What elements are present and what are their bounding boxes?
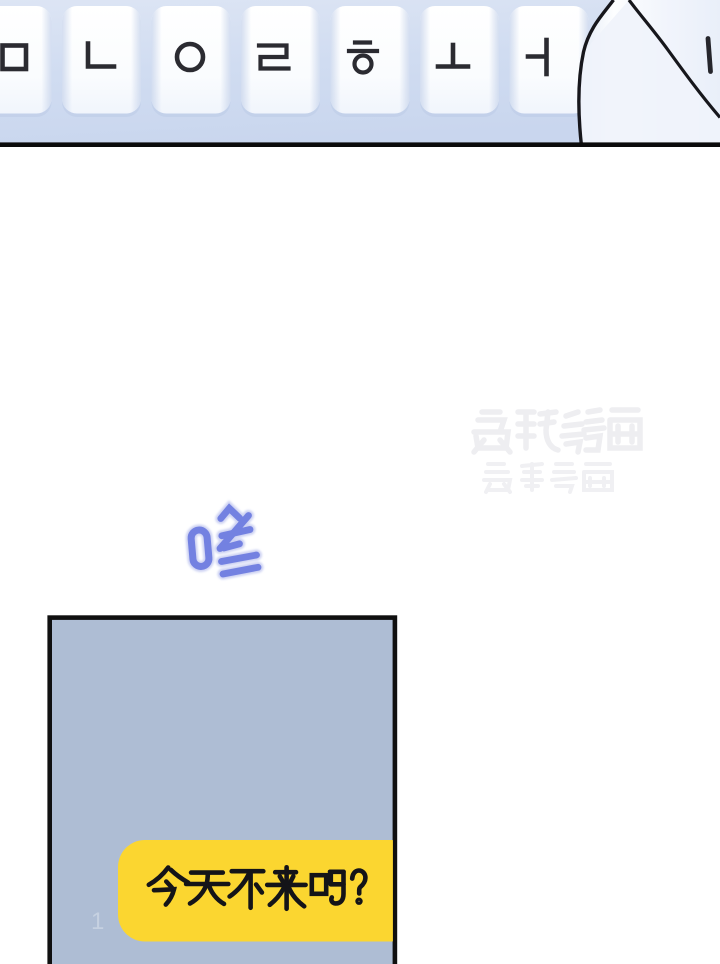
svg-text:1: 1	[91, 908, 104, 935]
